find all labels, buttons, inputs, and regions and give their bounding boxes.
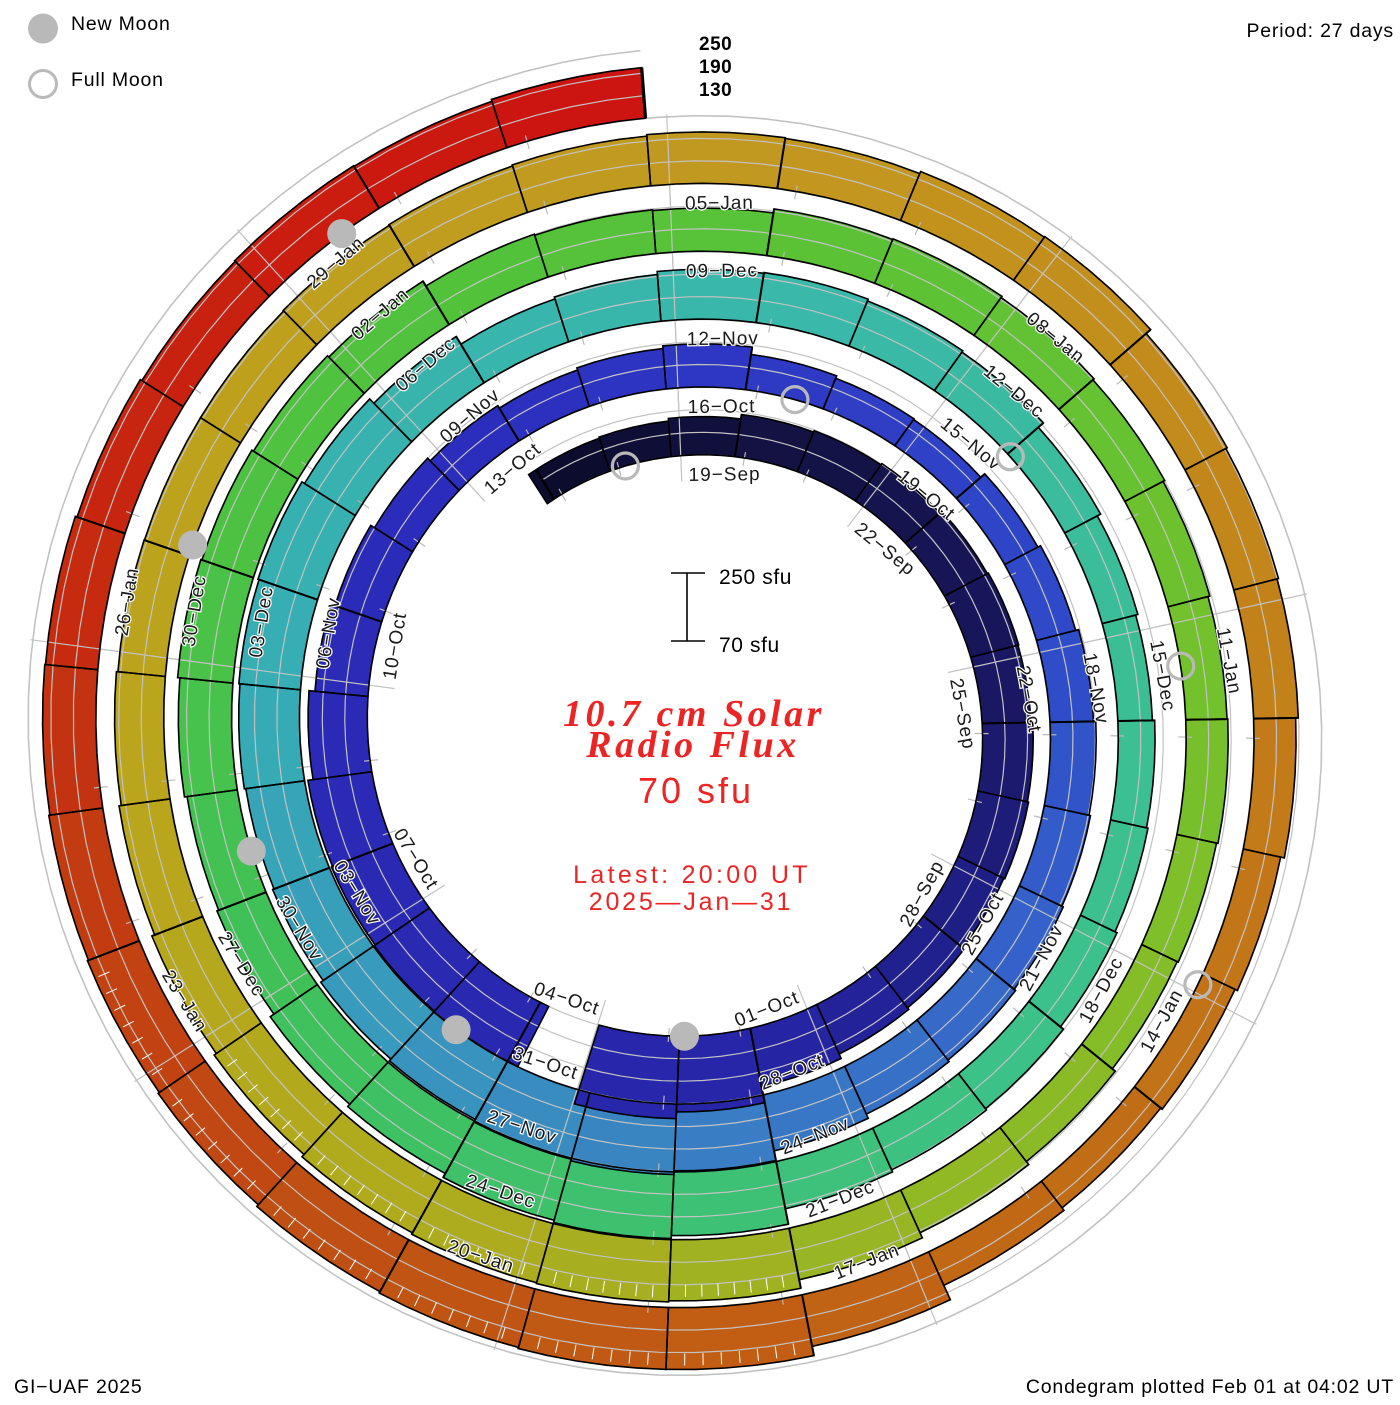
svg-text:130: 130 bbox=[699, 80, 732, 101]
svg-text:250 sfu: 250 sfu bbox=[719, 566, 792, 589]
svg-text:19−Sep: 19−Sep bbox=[688, 464, 760, 486]
svg-text:Full Moon: Full Moon bbox=[71, 69, 164, 91]
svg-text:2025—Jan—31: 2025—Jan—31 bbox=[589, 888, 794, 916]
svg-text:70 sfu: 70 sfu bbox=[638, 770, 754, 811]
svg-text:GI−UAF 2025: GI−UAF 2025 bbox=[14, 1376, 143, 1398]
svg-text:05−Jan: 05−Jan bbox=[685, 193, 754, 215]
svg-text:190: 190 bbox=[699, 57, 732, 78]
svg-text:250: 250 bbox=[699, 34, 732, 55]
svg-text:09−Dec: 09−Dec bbox=[686, 260, 758, 282]
svg-text:New Moon: New Moon bbox=[71, 13, 171, 35]
svg-text:Condegram plotted Feb 01 at 04: Condegram plotted Feb 01 at 04:02 UT bbox=[1026, 1376, 1394, 1398]
svg-text:70 sfu: 70 sfu bbox=[719, 634, 780, 657]
svg-text:Latest: 20:00 UT: Latest: 20:00 UT bbox=[573, 861, 811, 889]
svg-text:12−Nov: 12−Nov bbox=[687, 328, 759, 350]
svg-text:Radio Flux: Radio Flux bbox=[585, 724, 799, 766]
svg-text:Period: 27 days: Period: 27 days bbox=[1246, 20, 1394, 42]
svg-text:16−Oct: 16−Oct bbox=[688, 396, 756, 418]
